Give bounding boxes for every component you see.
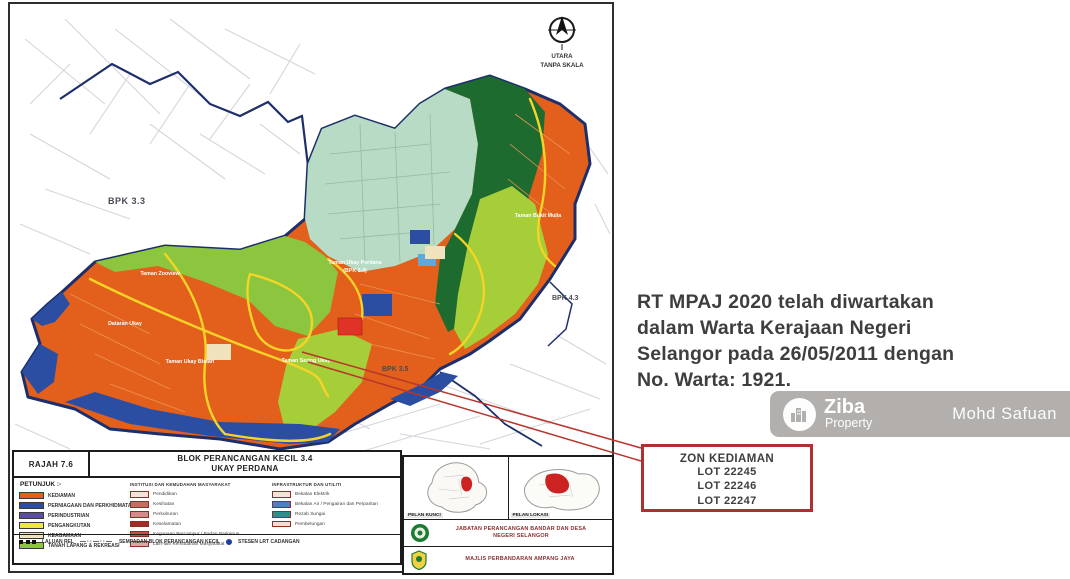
compass-label-1: UTARA: [551, 53, 573, 60]
legend-swatch: [130, 491, 149, 498]
legend-title-line1: BLOK PERANCANGAN KECIL 3.4: [177, 454, 312, 464]
compass-label-2: TANPA SKALA: [540, 62, 584, 69]
brand-sub: Property: [825, 417, 872, 431]
svg-text:Taman Ukay Perdana: Taman Ukay Perdana: [328, 260, 381, 266]
legend-item-label: KEDIAMAN: [48, 493, 75, 499]
legend-item-label: Bekalan Air / Pengairan dan Perparitan: [295, 502, 378, 507]
station-symbol: [226, 539, 232, 545]
legend-item-label: Pendidikan: [153, 492, 177, 497]
gazette-line: dalam Warta Kerajaan Negeri: [637, 316, 1070, 342]
callout-lot: LOT 22247: [644, 494, 810, 508]
watermark-bar: Ziba Property Mohd Safuan: [770, 391, 1070, 437]
legend-item-label: PERNIAGAAN DAN PERKHIDMATAN: [48, 503, 135, 509]
legend-swatch: [130, 501, 149, 508]
legend-swatch: [19, 492, 44, 499]
legend-swatch: [19, 512, 44, 519]
rail-symbol: [19, 540, 36, 544]
legend-swatch: [272, 501, 291, 508]
legend-body: PETUNJUK :- KEDIAMAN PERNIAGAAN DAN PERK…: [14, 478, 400, 548]
map-sheet: BPK 3.3 BPK 4.3 BPK 3.5 Taman Zooview Da…: [8, 2, 614, 573]
callout-title: ZON KEDIAMAN: [644, 453, 810, 465]
zone-institution-2: [425, 246, 445, 259]
legend-swatch: [272, 511, 291, 518]
svg-text:Taman Bukit Mulia: Taman Bukit Mulia: [515, 213, 561, 219]
station-label: STESEN LRT CADANGAN: [238, 539, 300, 545]
svg-text:(BPK 3.4): (BPK 3.4): [343, 268, 367, 274]
key-plan-label: PELAN KUNCI: [406, 513, 443, 518]
jpbd-logo-icon: [410, 523, 430, 543]
legend-col-header: INFRASTRUKTUR DAN UTILITI: [272, 482, 378, 487]
legend-item-label: Bekalan Elektrik: [295, 492, 329, 497]
zoning-map: BPK 3.3 BPK 4.3 BPK 3.5 Taman Zooview Da…: [10, 4, 612, 452]
zone-institution-1: [205, 344, 231, 360]
legend-swatch: [272, 521, 291, 528]
svg-text:Taman Ukay Bistari: Taman Ukay Bistari: [166, 359, 215, 365]
bpk-33-label: BPK 3.3: [108, 196, 146, 206]
plan-thumbnails: PELAN KUNCI PELAN LOKASI: [404, 457, 612, 520]
info-panel: PELAN KUNCI PELAN LOKASI: [402, 455, 614, 575]
bpk-43-label: BPK 4.3: [552, 295, 579, 302]
key-plan-map: [404, 457, 508, 519]
watermark-author: Mohd Safuan: [952, 405, 1057, 424]
callout-lot: LOT 22246: [644, 479, 810, 493]
location-plan-map: [509, 457, 613, 519]
block-boundary-line: [440, 372, 542, 446]
department-row: JABATAN PERANCANGAN BANDAR DAN DESA NEGE…: [404, 520, 612, 547]
legend-item: KEDIAMAN: [19, 492, 135, 499]
legend-swatch: [272, 491, 291, 498]
department-name: JABATAN PERANCANGAN BANDAR DAN DESA NEGE…: [436, 526, 606, 540]
legend-title-line2: UKAY PERDANA: [211, 464, 278, 474]
gazette-line: No. Warta: 1921.: [637, 368, 1070, 394]
legend-col-header: INSTITUSI DAN KEMUDAHAN MASYARAKAT: [130, 482, 239, 487]
legend-swatch: [130, 511, 149, 518]
legend-item: Keselamatan: [130, 521, 239, 528]
legend-item: Perkuburan: [130, 511, 239, 518]
legend-item: Bekalan Air / Pengairan dan Perparitan: [272, 501, 378, 508]
ziba-logo-icon: [783, 398, 816, 431]
boundary-label: SEMPADAN BLOK PERANCANGAN KECIL: [119, 539, 220, 545]
gazette-line: Selangor pada 26/05/2011 dengan: [637, 342, 1070, 368]
watermark-brand: Ziba Property: [824, 397, 872, 431]
legend-item: Pendidikan: [130, 491, 239, 498]
legend-item-label: PERINDUSTRIAN: [48, 513, 89, 519]
legend-item-label: Kesihatan: [153, 502, 174, 507]
page: BPK 3.3 BPK 4.3 BPK 3.5 Taman Zooview Da…: [0, 0, 1070, 579]
key-plan: PELAN KUNCI: [404, 457, 509, 519]
gazette-note: RT MPAJ 2020 telah diwartakan dalam Wart…: [637, 290, 1070, 394]
boundary-symbol: —··—··—: [80, 539, 113, 545]
callout-lot: LOT 22245: [644, 465, 810, 479]
legend-bottom-row: LALUAN REL —··—··— SEMPADAN BLOK PERANCA…: [14, 534, 400, 548]
gazette-line: RT MPAJ 2020 telah diwartakan: [637, 290, 1070, 316]
legend-item: Pembetungan: [272, 521, 378, 528]
legend-item: Kesihatan: [130, 501, 239, 508]
council-row: MAJLIS PERBANDARAN AMPANG JAYA: [404, 547, 612, 573]
legend-item-label: Rezab Sungai: [295, 512, 325, 517]
svg-text:Dataran Ukay: Dataran Ukay: [108, 321, 142, 327]
legend-block: RAJAH 7.6 BLOK PERANCANGAN KECIL 3.4 UKA…: [12, 450, 402, 565]
svg-text:Taman Sering Ukay: Taman Sering Ukay: [282, 358, 331, 364]
legend-item: PENGANGKUTAN: [19, 522, 135, 529]
legend-item: PERINDUSTRIAN: [19, 512, 135, 519]
legend-item-label: Perkuburan: [153, 512, 178, 517]
legend-swatch: [19, 502, 44, 509]
figure-number: RAJAH 7.6: [14, 452, 90, 476]
legend-item: Rezab Sungai: [272, 511, 378, 518]
compass-icon: [548, 16, 576, 50]
legend-title: BLOK PERANCANGAN KECIL 3.4 UKAY PERDANA: [90, 452, 400, 476]
legend-header: RAJAH 7.6 BLOK PERANCANGAN KECIL 3.4 UKA…: [14, 452, 400, 478]
department-line2: NEGERI SELANGOR: [436, 533, 606, 540]
mpaj-crest-icon: [410, 550, 428, 570]
key-label: PETUNJUK :-: [20, 481, 61, 488]
legend-swatch: [19, 522, 44, 529]
highlighted-lot: [338, 318, 362, 335]
council-name: MAJLIS PERBANDARAN AMPANG JAYA: [434, 556, 606, 563]
legend-item-label: Keselamatan: [153, 522, 181, 527]
svg-text:Taman Zooview: Taman Zooview: [140, 271, 180, 277]
legend-col-infrastructure: INFRASTRUKTUR DAN UTILITI Bekalan Elektr…: [272, 482, 378, 528]
location-plan-label: PELAN LOKASI: [511, 513, 551, 518]
department-line1: JABATAN PERANCANGAN BANDAR DAN DESA: [436, 526, 606, 533]
brand-name: Ziba: [824, 397, 872, 417]
legend-item-label: Pembetungan: [295, 522, 325, 527]
location-plan: PELAN LOKASI: [509, 457, 613, 519]
legend-swatch: [130, 521, 149, 528]
bpk-35-label: BPK 3.5: [382, 366, 409, 373]
legend-item: PERNIAGAAN DAN PERKHIDMATAN: [19, 502, 135, 509]
lot-callout: ZON KEDIAMAN LOT 22245 LOT 22246 LOT 222…: [641, 444, 813, 512]
rail-label: LALUAN REL: [42, 539, 74, 545]
legend-item: Bekalan Elektrik: [272, 491, 378, 498]
legend-item-label: PENGANGKUTAN: [48, 523, 90, 529]
municipal-boundary-line: [60, 64, 308, 166]
